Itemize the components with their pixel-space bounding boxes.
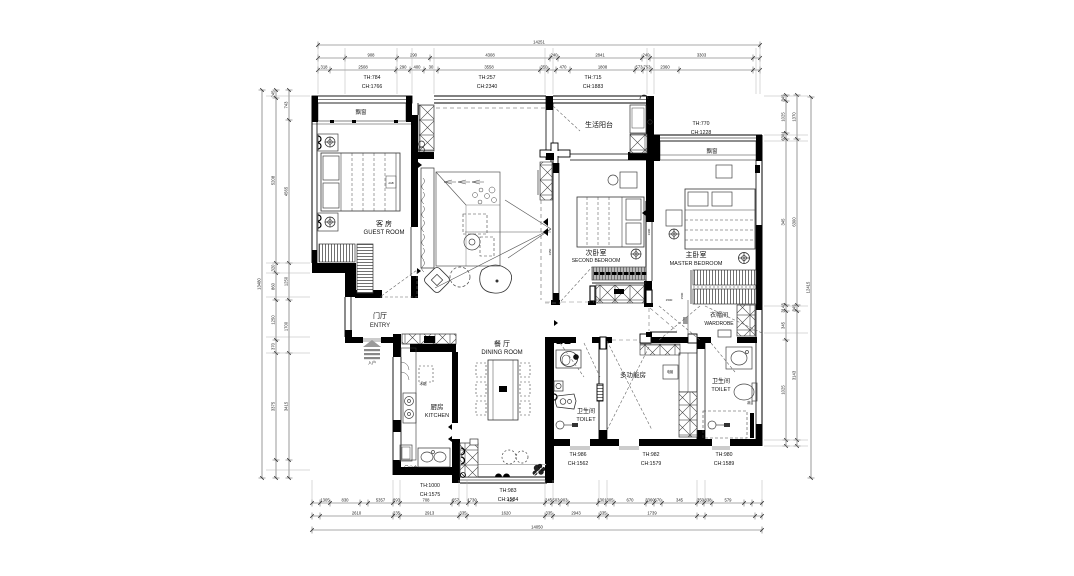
svg-text:GUEST ROOM: GUEST ROOM bbox=[364, 230, 405, 236]
svg-text:345: 345 bbox=[676, 498, 684, 503]
svg-text:335: 335 bbox=[460, 511, 468, 516]
svg-text:ENTRY: ENTRY bbox=[370, 323, 390, 329]
svg-text:830: 830 bbox=[342, 498, 350, 503]
svg-text:670: 670 bbox=[627, 498, 635, 503]
svg-text:2610: 2610 bbox=[352, 511, 362, 516]
svg-text:MASTER BEDROOM: MASTER BEDROOM bbox=[670, 261, 723, 267]
svg-text:14251: 14251 bbox=[533, 40, 545, 45]
svg-text:TH:715: TH:715 bbox=[584, 75, 601, 81]
svg-text:345: 345 bbox=[792, 304, 797, 312]
svg-text:入户: 入户 bbox=[368, 359, 376, 365]
svg-text:3415: 3415 bbox=[284, 401, 289, 411]
svg-text:A&B: A&B bbox=[388, 181, 393, 185]
svg-text:CH:1575: CH:1575 bbox=[420, 492, 441, 498]
svg-text:13480: 13480 bbox=[257, 278, 262, 290]
svg-text:708: 708 bbox=[423, 498, 431, 503]
svg-text:TH:784: TH:784 bbox=[363, 75, 380, 81]
svg-text:飘窗: 飘窗 bbox=[706, 147, 718, 155]
svg-text:客 房: 客 房 bbox=[376, 219, 392, 228]
svg-text:235: 235 bbox=[393, 511, 401, 516]
svg-text:893: 893 bbox=[393, 498, 401, 503]
svg-text:1500: 1500 bbox=[680, 292, 684, 299]
svg-text:TH:1000: TH:1000 bbox=[420, 483, 440, 489]
svg-text:5357: 5357 bbox=[376, 498, 386, 503]
svg-text:TH:980: TH:980 bbox=[715, 452, 732, 458]
svg-text:345: 345 bbox=[781, 321, 786, 329]
svg-text:飘窗: 飘窗 bbox=[355, 108, 367, 116]
svg-text:CH:1883: CH:1883 bbox=[583, 84, 604, 90]
svg-text:1500: 1500 bbox=[666, 298, 673, 302]
svg-text:4308: 4308 bbox=[485, 53, 495, 58]
svg-text:370: 370 bbox=[271, 342, 276, 350]
svg-text:DINING ROOM: DINING ROOM bbox=[481, 350, 522, 356]
svg-text:5208: 5208 bbox=[271, 175, 276, 185]
svg-text:335: 335 bbox=[600, 511, 608, 516]
svg-text:3558: 3558 bbox=[484, 65, 494, 70]
svg-text:CH:1562: CH:1562 bbox=[568, 461, 589, 467]
svg-text:TH:257: TH:257 bbox=[478, 75, 495, 81]
svg-text:6300: 6300 bbox=[792, 217, 797, 227]
svg-text:CH:2340: CH:2340 bbox=[477, 84, 498, 90]
svg-text:245: 245 bbox=[271, 90, 276, 98]
svg-text:743: 743 bbox=[284, 101, 289, 109]
svg-text:TOILET: TOILET bbox=[711, 387, 731, 393]
svg-text:2841: 2841 bbox=[595, 53, 605, 58]
svg-text:860: 860 bbox=[271, 282, 276, 290]
svg-text:240: 240 bbox=[643, 53, 651, 58]
svg-text:3143: 3143 bbox=[792, 370, 797, 380]
svg-text:主卧室: 主卧室 bbox=[686, 250, 707, 259]
svg-text:903: 903 bbox=[561, 498, 569, 503]
svg-text:345: 345 bbox=[781, 94, 786, 102]
svg-text:卫生间: 卫生间 bbox=[577, 407, 595, 415]
svg-text:CH:1228: CH:1228 bbox=[691, 130, 712, 136]
svg-text:厨房: 厨房 bbox=[431, 402, 444, 411]
svg-text:670: 670 bbox=[655, 498, 663, 503]
svg-text:305: 305 bbox=[607, 498, 615, 503]
svg-text:14050: 14050 bbox=[531, 525, 543, 530]
svg-text:573: 573 bbox=[636, 65, 644, 70]
svg-text:1250: 1250 bbox=[284, 276, 289, 286]
svg-text:318: 318 bbox=[321, 65, 329, 70]
svg-text:12415: 12415 bbox=[806, 281, 811, 293]
svg-text:345: 345 bbox=[781, 218, 786, 226]
svg-text:1700: 1700 bbox=[284, 321, 289, 331]
svg-text:1370: 1370 bbox=[792, 112, 797, 122]
svg-text:2360: 2360 bbox=[660, 65, 670, 70]
svg-text:470: 470 bbox=[560, 65, 568, 70]
svg-text:2508: 2508 bbox=[358, 65, 368, 70]
svg-text:1025: 1025 bbox=[781, 385, 786, 395]
svg-text:KITCHEN: KITCHEN bbox=[425, 413, 449, 419]
svg-text:电脑: 电脑 bbox=[667, 369, 673, 374]
svg-text:1025: 1025 bbox=[781, 112, 786, 122]
svg-text:1950: 1950 bbox=[548, 248, 552, 255]
svg-text:1739: 1739 bbox=[647, 511, 657, 516]
svg-text:〇小水: 〇小水 bbox=[404, 464, 418, 471]
svg-text:生活阳台: 生活阳台 bbox=[585, 120, 613, 129]
svg-text:4565: 4565 bbox=[284, 186, 289, 196]
svg-text:335: 335 bbox=[546, 511, 554, 516]
svg-text:1305: 1305 bbox=[320, 498, 330, 503]
svg-text:门厅: 门厅 bbox=[373, 311, 387, 320]
svg-text:320: 320 bbox=[271, 264, 276, 272]
svg-text:餐 厅: 餐 厅 bbox=[494, 339, 510, 348]
svg-text:245: 245 bbox=[545, 498, 553, 503]
svg-text:350: 350 bbox=[697, 498, 705, 503]
svg-text:1808: 1808 bbox=[598, 65, 608, 70]
svg-text:CH:1766: CH:1766 bbox=[362, 84, 383, 90]
svg-text:SECOND BEDROOM: SECOND BEDROOM bbox=[572, 258, 621, 264]
svg-text:TH:770: TH:770 bbox=[692, 121, 709, 127]
svg-text:次卧室: 次卧室 bbox=[586, 248, 607, 257]
svg-text:3375: 3375 bbox=[271, 401, 276, 411]
svg-text:503: 503 bbox=[553, 498, 561, 503]
svg-text:卫生间: 卫生间 bbox=[712, 377, 730, 385]
svg-text:400: 400 bbox=[414, 65, 422, 70]
svg-text:CH:1589: CH:1589 bbox=[714, 461, 735, 467]
svg-text:CH:1579: CH:1579 bbox=[641, 461, 662, 467]
svg-text:1250: 1250 bbox=[271, 315, 276, 325]
svg-text:290: 290 bbox=[410, 53, 418, 58]
svg-text:1730: 1730 bbox=[467, 498, 477, 503]
svg-text:30: 30 bbox=[429, 65, 434, 70]
svg-text:838: 838 bbox=[705, 498, 713, 503]
svg-text:CH:1584: CH:1584 bbox=[498, 497, 519, 503]
svg-text:3303: 3303 bbox=[697, 53, 707, 58]
svg-text:1900: 1900 bbox=[647, 228, 651, 235]
svg-text:3143: 3143 bbox=[781, 303, 786, 313]
svg-text:290: 290 bbox=[400, 65, 408, 70]
svg-text:衣帽间: 衣帽间 bbox=[710, 311, 728, 319]
svg-text:TH:983: TH:983 bbox=[499, 488, 516, 494]
svg-text:TH:986: TH:986 bbox=[569, 452, 586, 458]
svg-text:753: 753 bbox=[644, 65, 652, 70]
svg-text:TOILET: TOILET bbox=[576, 417, 596, 423]
svg-text:908: 908 bbox=[368, 53, 376, 58]
svg-text:240: 240 bbox=[551, 53, 559, 58]
svg-text:WARDROBE: WARDROBE bbox=[704, 321, 734, 327]
svg-text:TH:982: TH:982 bbox=[642, 452, 659, 458]
svg-text:淋浴: 淋浴 bbox=[747, 400, 754, 405]
svg-text:2913: 2913 bbox=[425, 511, 435, 516]
svg-text:350: 350 bbox=[541, 65, 549, 70]
svg-text:657: 657 bbox=[452, 498, 460, 503]
svg-text:579: 579 bbox=[725, 498, 733, 503]
svg-text:1620: 1620 bbox=[501, 511, 511, 516]
svg-text:2943: 2943 bbox=[571, 511, 581, 516]
svg-text:6301: 6301 bbox=[781, 131, 786, 141]
